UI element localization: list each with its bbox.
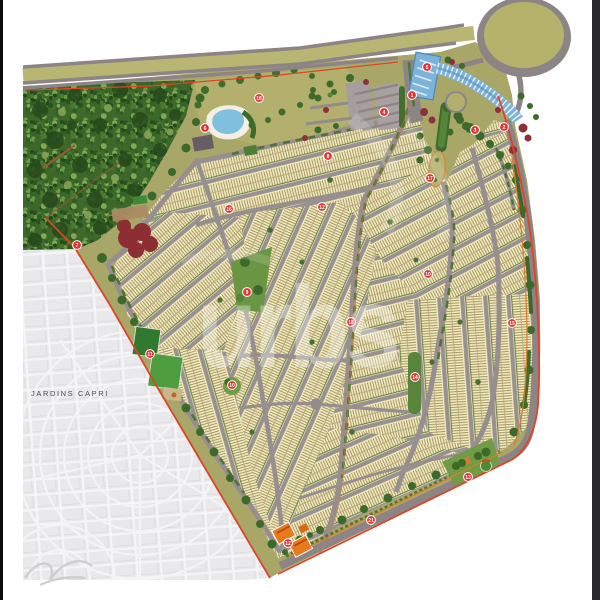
svg-text:4: 4 bbox=[383, 110, 386, 116]
svg-text:JARDINS CAPRI: JARDINS CAPRI bbox=[31, 389, 109, 398]
svg-text:7: 7 bbox=[76, 243, 79, 249]
svg-text:13: 13 bbox=[465, 475, 471, 481]
svg-text:12: 12 bbox=[319, 205, 325, 211]
svg-text:12: 12 bbox=[285, 541, 291, 547]
svg-text:16: 16 bbox=[226, 207, 232, 213]
svg-text:17: 17 bbox=[427, 176, 433, 182]
svg-text:8: 8 bbox=[327, 154, 330, 160]
svg-text:21: 21 bbox=[368, 518, 374, 524]
svg-text:urbs: urbs bbox=[197, 262, 397, 391]
svg-text:6: 6 bbox=[204, 126, 207, 132]
svg-text:15: 15 bbox=[509, 321, 515, 327]
svg-text:14: 14 bbox=[412, 375, 418, 381]
svg-text:10: 10 bbox=[425, 272, 431, 278]
svg-text:11: 11 bbox=[147, 352, 153, 358]
svg-text:2: 2 bbox=[503, 125, 506, 131]
svg-text:1: 1 bbox=[411, 93, 414, 99]
svg-text:5: 5 bbox=[426, 65, 429, 71]
svg-text:3: 3 bbox=[474, 128, 477, 134]
svg-text:18: 18 bbox=[256, 96, 262, 102]
